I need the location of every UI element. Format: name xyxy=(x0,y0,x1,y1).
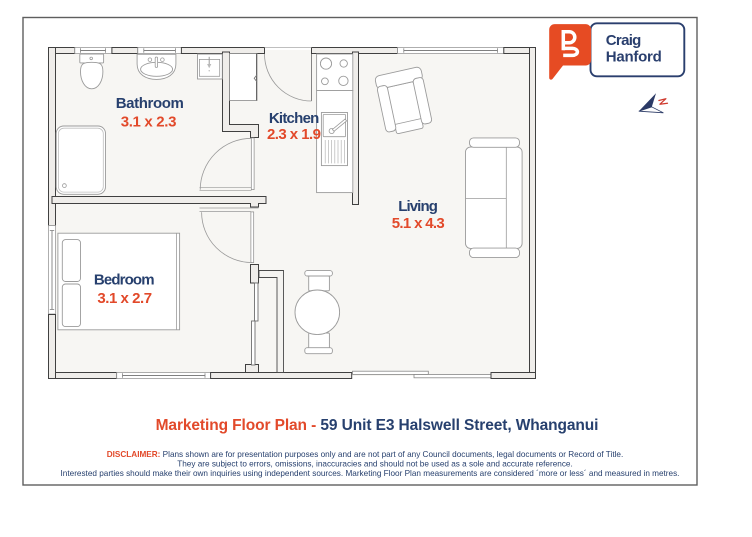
svg-text:Living: Living xyxy=(398,198,438,215)
svg-text:Craig: Craig xyxy=(606,32,641,49)
svg-text:5.1 x 4.3: 5.1 x 4.3 xyxy=(392,215,445,232)
svg-text:Interested parties should make: Interested parties should make their own… xyxy=(61,469,680,478)
svg-text:Marketing Floor Plan - 59 Unit: Marketing Floor Plan - 59 Unit E3 Halswe… xyxy=(156,417,599,434)
svg-text:Hanford: Hanford xyxy=(606,49,662,66)
svg-text:3.1 x 2.3: 3.1 x 2.3 xyxy=(121,114,176,131)
svg-text:Bathroom: Bathroom xyxy=(116,95,184,112)
svg-text:DISCLAIMER: Plans shown are f: DISCLAIMER: Plans shown are for presenta… xyxy=(107,450,624,459)
svg-text:They are subject to errors, om: They are subject to errors, omissions, i… xyxy=(177,459,573,468)
svg-text:Kitchen: Kitchen xyxy=(269,110,319,127)
svg-text:2.3 x 1.9: 2.3 x 1.9 xyxy=(267,126,321,143)
svg-text:3.1 x 2.7: 3.1 x 2.7 xyxy=(97,290,151,307)
svg-text:Bedroom: Bedroom xyxy=(94,271,154,288)
